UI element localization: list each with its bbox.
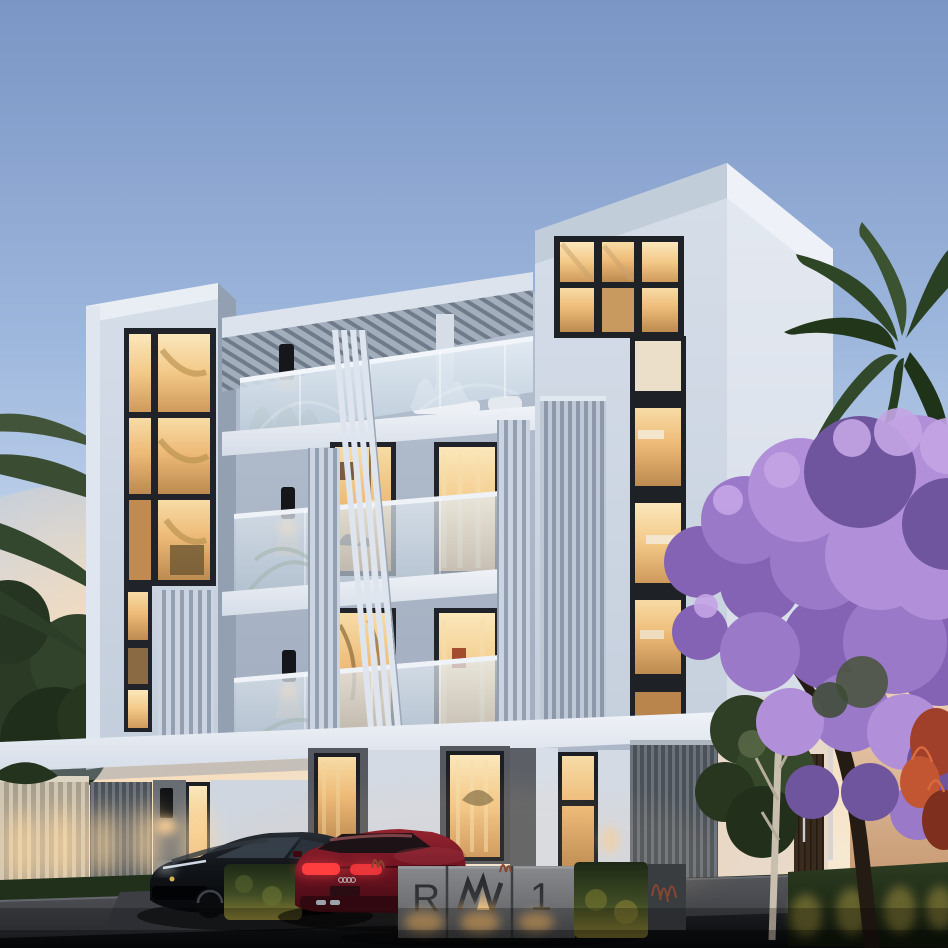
louver-strip-right: [497, 420, 530, 742]
left-tower-louver: [158, 590, 214, 738]
left-tower: [86, 283, 236, 770]
louver-panel-tower: [540, 396, 606, 744]
stair-window-upper: [554, 236, 684, 338]
louver-strip-left: [308, 448, 340, 742]
scene-canvas: R 1: [0, 0, 948, 948]
vignette: [0, 908, 948, 948]
left-tower-window: [124, 328, 216, 586]
left-tower-strip-window: [124, 586, 152, 732]
architectural-render: R 1: [0, 0, 948, 948]
left-tower-edge: [86, 306, 100, 768]
